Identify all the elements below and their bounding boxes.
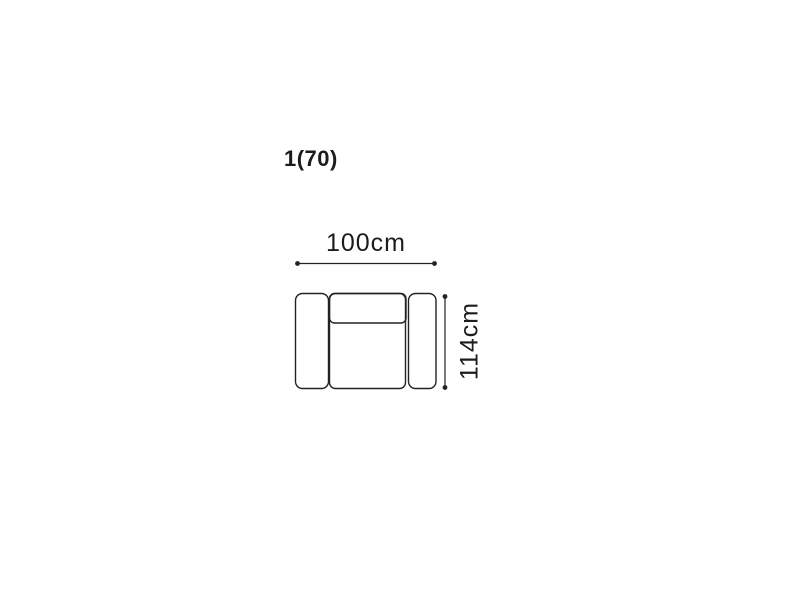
page-background: 1(70) 100cm 114cm	[0, 0, 800, 600]
left-armrest	[296, 294, 329, 389]
armchair-dimension-diagram	[0, 0, 800, 600]
height-dimension-line	[443, 294, 448, 390]
seat	[330, 294, 406, 389]
height-dimension-dot-bottom	[443, 385, 448, 390]
height-dimension-dot-top	[443, 294, 448, 299]
width-dimension-dot-left	[295, 261, 300, 266]
armchair-top-view-drawing	[296, 294, 437, 389]
right-armrest	[409, 294, 437, 389]
width-dimension-line	[295, 261, 437, 266]
height-dimension-label: 114cm	[456, 302, 485, 380]
width-dimension-dot-right	[432, 261, 437, 266]
